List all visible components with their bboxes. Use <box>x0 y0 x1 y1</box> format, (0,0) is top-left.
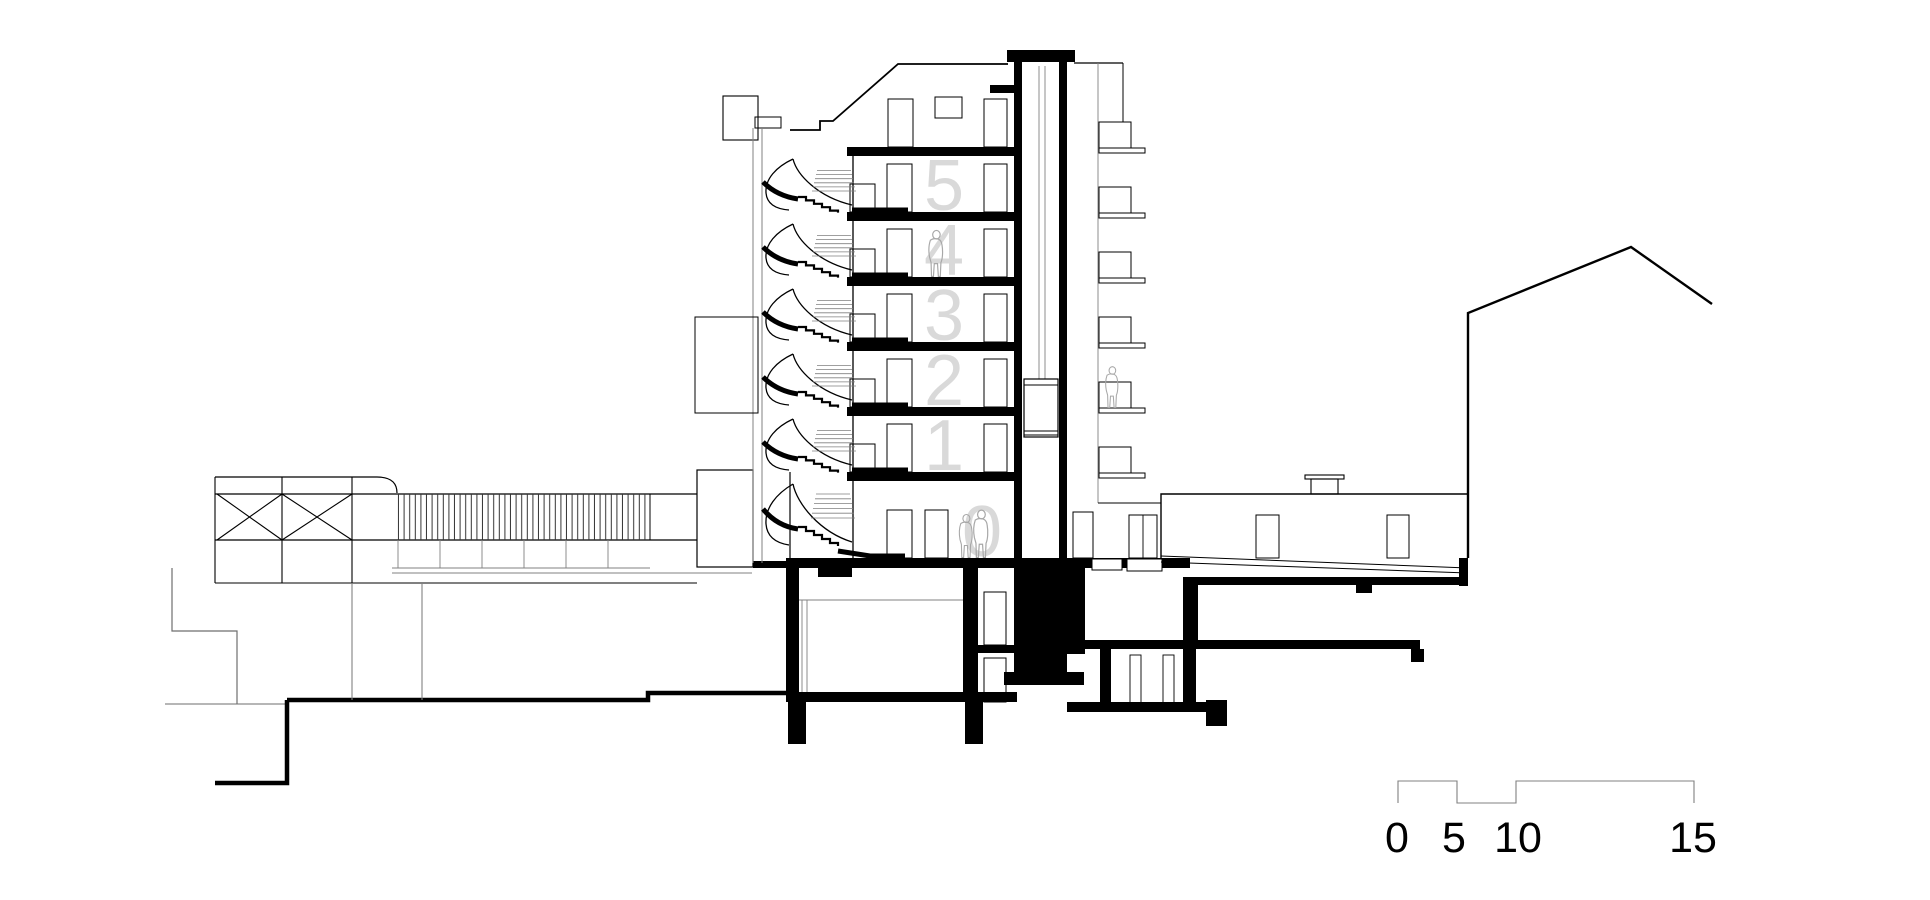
interior-door <box>984 359 1007 407</box>
scale-bar-line <box>1398 781 1694 803</box>
slab-hatch-box <box>1092 559 1122 570</box>
basement-wall <box>1059 558 1085 654</box>
basement-wall <box>1183 577 1198 642</box>
building-section-drawing: 543210 <box>0 0 1930 900</box>
person-figure-balcony <box>1106 367 1118 408</box>
slab-notch <box>818 568 852 577</box>
foundation-footing <box>1206 700 1227 726</box>
interior-door <box>887 229 912 277</box>
basement-door-frame <box>1130 655 1141 703</box>
tower <box>695 63 1123 563</box>
section-drawing-canvas: 543210 <box>0 0 1930 900</box>
balcony-window <box>1099 122 1131 148</box>
balcony-window <box>1099 187 1131 213</box>
ground-cut-step <box>215 700 287 783</box>
scale-bar: 0 5 10 15 <box>1385 781 1717 862</box>
balcony-window <box>1099 252 1131 278</box>
scale-label-15: 15 <box>1669 814 1717 862</box>
floor-slab <box>847 277 1014 286</box>
slab-end-block <box>1411 649 1424 662</box>
penthouse-roof <box>790 64 1008 130</box>
basement-door <box>984 592 1006 645</box>
stair-tower-roof-curb <box>755 117 781 128</box>
balcony-slab <box>1099 473 1145 478</box>
interior-door <box>984 164 1007 212</box>
interior-door <box>887 164 912 212</box>
basement-wall <box>1183 649 1196 706</box>
terrain-step-left <box>172 568 237 704</box>
balcony-slab <box>1099 213 1145 218</box>
sloped-slab-line <box>1161 562 1468 573</box>
shaft-cap <box>1007 50 1075 62</box>
stair-base-slab <box>753 561 790 568</box>
scale-label-10: 10 <box>1494 814 1542 862</box>
interior-door <box>887 359 912 407</box>
x-braced-truss <box>215 477 352 583</box>
balcony <box>1099 317 1145 348</box>
ground-cut-line <box>287 693 786 700</box>
spiral-stair-flight <box>763 419 908 473</box>
basement-wall <box>786 568 799 692</box>
foundation-footing <box>1356 584 1372 593</box>
interior-door <box>887 424 912 472</box>
spiral-stair-flight <box>763 289 908 343</box>
shaft-pit-slab <box>1004 672 1084 685</box>
balcony-slab <box>1099 343 1145 348</box>
ground-floor-door <box>925 510 948 558</box>
basement <box>786 556 1468 744</box>
slab-hatch-box <box>1127 559 1162 571</box>
basement-floor-slab <box>786 692 1017 702</box>
sloped-slab-line <box>1161 556 1468 568</box>
balcony <box>1099 447 1145 478</box>
floor-slab <box>847 212 1014 221</box>
basement-door-frame <box>1163 655 1174 703</box>
penthouse-door <box>888 99 913 147</box>
elevator-cab <box>1024 379 1058 437</box>
annex-door <box>1387 515 1409 558</box>
annex-door <box>1256 515 1279 558</box>
penthouse-door <box>984 99 1007 147</box>
neighbor-building-outline <box>1468 247 1712 558</box>
balcony <box>1099 122 1145 153</box>
stair-landing-box <box>695 317 758 413</box>
neighbor-foundation <box>1459 558 1468 586</box>
footbridge <box>215 470 790 700</box>
right-annex-building <box>1098 475 1468 558</box>
slat-railing <box>394 494 648 540</box>
corridor-floor <box>973 645 1015 653</box>
spiral-stair-flight <box>763 224 908 278</box>
balcony-window <box>1099 317 1131 343</box>
ground-floor-door <box>887 510 912 558</box>
ground-floor-door <box>1073 512 1093 558</box>
stair-base-block <box>697 470 753 567</box>
floor-slab <box>847 147 1014 156</box>
foundation-pier <box>965 702 983 744</box>
terrain-ground-lines <box>165 568 786 783</box>
spiral-stair-flight <box>763 354 908 408</box>
deck-edge-band <box>215 540 752 583</box>
scale-label-5: 5 <box>1442 814 1466 862</box>
scale-label-0: 0 <box>1385 814 1409 862</box>
balcony-slab <box>1099 148 1145 153</box>
balcony-window <box>1099 447 1131 473</box>
shallow-slab <box>1198 577 1468 585</box>
basement-floor-slab <box>1067 702 1211 712</box>
penthouse-window <box>935 97 962 118</box>
spiral-stair-ground-flight <box>763 484 905 556</box>
balcony <box>1099 187 1145 218</box>
floor-slab <box>847 472 1014 481</box>
floor-slab <box>847 407 1014 416</box>
floor-slab <box>847 342 1014 351</box>
basement-wall <box>963 568 978 692</box>
basement-wall <box>1100 649 1111 705</box>
interior-door <box>984 294 1007 342</box>
roof-vent <box>1311 479 1338 494</box>
balcony-window <box>1099 382 1131 408</box>
foundation-pier <box>788 702 806 744</box>
interior-door <box>984 424 1007 472</box>
balcony-slab <box>1099 278 1145 283</box>
balcony <box>1099 252 1145 283</box>
interior-door <box>984 229 1007 277</box>
basement-floor-slab <box>1067 640 1420 649</box>
truss-top-chord <box>215 477 397 493</box>
balcony-slab <box>1099 408 1145 413</box>
interior-door <box>887 294 912 342</box>
spiral-stair-flight <box>763 159 908 213</box>
roof-beam-stub <box>990 85 1015 93</box>
annex-outline <box>1161 494 1468 558</box>
roof-vent-cap <box>1305 475 1344 479</box>
